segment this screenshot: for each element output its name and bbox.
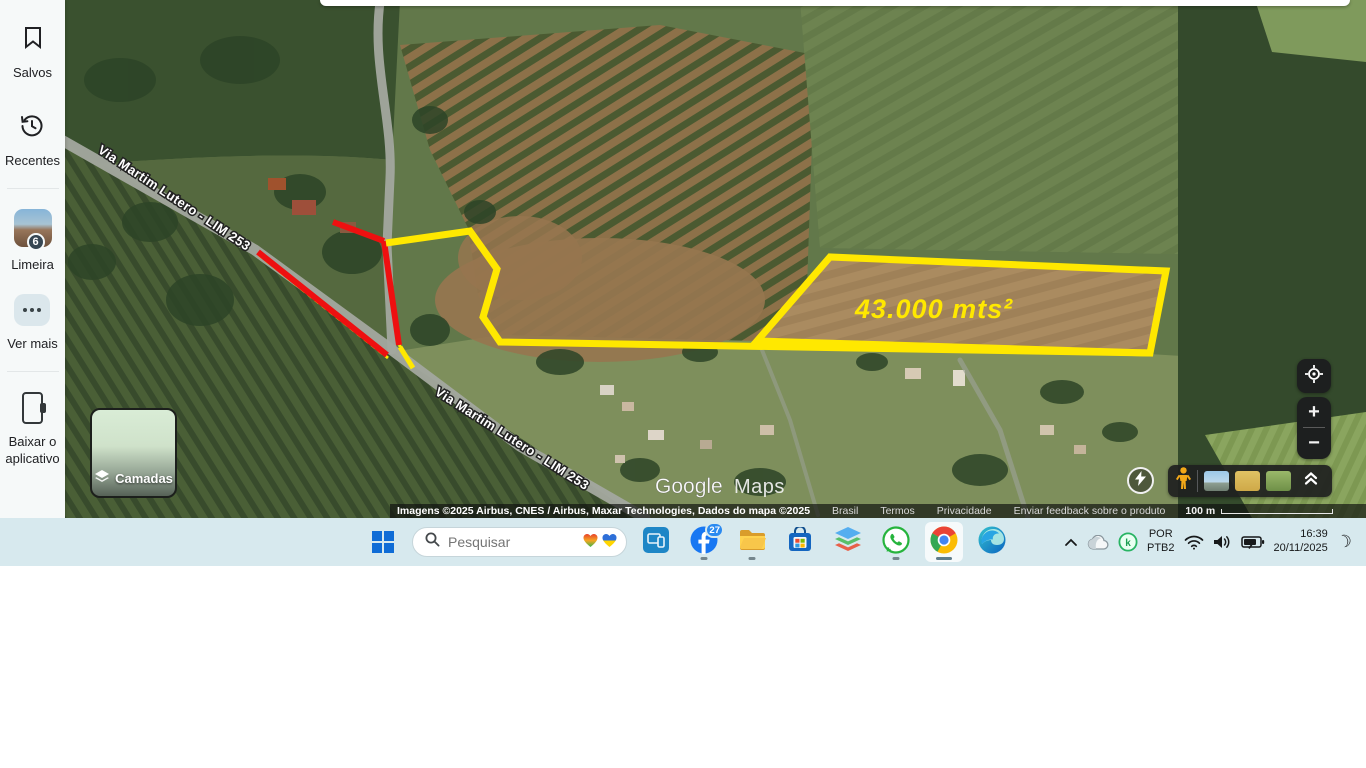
- blue-yellow-heart-icon: [601, 532, 618, 553]
- sidebar-item-label: Salvos: [13, 65, 52, 80]
- microsoft-store-icon: [787, 527, 813, 558]
- running-indicator: [701, 557, 708, 560]
- sidebar-item-recents[interactable]: Recentes: [5, 114, 60, 168]
- windows-taskbar: 27: [0, 518, 1366, 566]
- layers-icon: [94, 469, 110, 488]
- tray-date: 20/11/2025: [1274, 542, 1328, 556]
- active-indicator: [936, 557, 952, 560]
- layer-preview-satellite[interactable]: [1266, 471, 1291, 491]
- layers-app-button[interactable]: [829, 522, 867, 562]
- map-terrain: [0, 0, 1366, 518]
- sidebar-item-label-line2: aplicativo: [5, 451, 59, 466]
- watermark-maps: Maps: [734, 476, 785, 498]
- tray-chevron-up[interactable]: [1064, 538, 1078, 547]
- map-scale-label: 100 m: [1185, 505, 1215, 517]
- start-button[interactable]: [364, 522, 402, 562]
- attribution-link-brasil[interactable]: Brasil: [832, 505, 858, 517]
- maps-sidebar: Salvos Recentes 6 Limeir: [0, 0, 65, 518]
- layers-button-label: Camadas: [115, 471, 173, 486]
- pegman-icon[interactable]: [1176, 467, 1191, 495]
- sidebar-divider: [7, 371, 59, 372]
- file-explorer-icon: [739, 528, 766, 557]
- sidebar-item-saved[interactable]: Salvos: [13, 26, 52, 80]
- area-label: 43.000 mts²: [854, 294, 1013, 324]
- map-satellite-canvas[interactable]: Via Martim Lutero - LIM 253 Via Martim L…: [0, 0, 1366, 518]
- layers-app-icon: [834, 527, 862, 558]
- zoom-in-button[interactable]: +: [1297, 397, 1331, 427]
- layer-preview-streetview[interactable]: [1204, 471, 1229, 491]
- collapse-chevrons-icon[interactable]: [1303, 471, 1319, 491]
- kaspersky-icon[interactable]: k: [1118, 532, 1138, 552]
- attribution-link-feedback[interactable]: Enviar feedback sobre o produto: [1014, 505, 1166, 517]
- language-indicator[interactable]: POR PTB2: [1147, 528, 1175, 556]
- rainbow-heart-icon: [582, 532, 599, 553]
- whatsapp-button[interactable]: [877, 522, 915, 562]
- map-scale-bar: [1221, 509, 1333, 514]
- sidebar-item-limeira[interactable]: 6 Limeira: [11, 209, 54, 272]
- running-indicator: [749, 557, 756, 560]
- bookmark-icon: [22, 26, 44, 55]
- chrome-icon: [930, 526, 958, 559]
- edge-icon: [978, 526, 1006, 559]
- desktop: Via Martim Lutero - LIM 253 Via Martim L…: [0, 0, 1366, 768]
- lightning-extension-button[interactable]: [1127, 467, 1154, 494]
- map-attribution-bar: Imagens ©2025 Airbus, CNES / Airbus, Max…: [390, 504, 1366, 518]
- tray-time: 16:39: [1274, 528, 1328, 542]
- battery-charging-icon[interactable]: [1241, 535, 1265, 549]
- sidebar-divider: [7, 188, 59, 189]
- my-location-icon: [1304, 364, 1324, 389]
- layer-preview-terrain[interactable]: [1235, 471, 1260, 491]
- device-app-icon: [643, 527, 669, 558]
- blank-area: [0, 566, 1366, 768]
- search-card-edge[interactable]: [320, 0, 1350, 6]
- google-maps-window: Via Martim Lutero - LIM 253 Via Martim L…: [0, 0, 1366, 518]
- do-not-disturb-moon-icon[interactable]: ☽: [1335, 530, 1355, 553]
- lightning-icon: [1134, 471, 1147, 491]
- mini-toolbar-divider: [1197, 470, 1198, 492]
- device-app-button[interactable]: [637, 522, 675, 562]
- facebook-app-button[interactable]: 27: [685, 522, 723, 562]
- attribution-link-termos[interactable]: Termos: [880, 505, 914, 517]
- taskbar-search[interactable]: [412, 527, 627, 557]
- search-icon: [425, 532, 440, 552]
- language-code: POR: [1147, 528, 1175, 542]
- layers-button[interactable]: Camadas: [90, 408, 177, 498]
- file-explorer-button[interactable]: [733, 522, 771, 562]
- running-indicator: [893, 557, 900, 560]
- zoom-control: + −: [1297, 397, 1331, 459]
- volume-icon[interactable]: [1213, 534, 1232, 550]
- watermark-google: Google: [655, 475, 723, 498]
- sidebar-item-more[interactable]: Ver mais: [7, 294, 58, 351]
- sidebar-item-label-line1: Baixar o: [9, 434, 57, 449]
- keyboard-layout: PTB2: [1147, 542, 1175, 556]
- wifi-icon[interactable]: [1184, 535, 1204, 550]
- zoom-out-button[interactable]: −: [1297, 428, 1331, 458]
- imagery-credits: Imagens ©2025 Airbus, CNES / Airbus, Max…: [397, 505, 810, 517]
- place-badge: 6: [27, 233, 45, 251]
- history-icon: [20, 114, 44, 143]
- microsoft-store-button[interactable]: [781, 522, 819, 562]
- chrome-button-active[interactable]: [925, 522, 963, 562]
- sidebar-item-get-app[interactable]: Baixar o aplicativo: [5, 392, 59, 466]
- edge-button[interactable]: [973, 522, 1011, 562]
- svg-text:k: k: [1125, 538, 1131, 549]
- windows-logo-icon: [372, 531, 394, 553]
- sidebar-item-label: Recentes: [5, 153, 60, 168]
- clock[interactable]: 16:39 20/11/2025: [1274, 528, 1328, 556]
- map-mini-toolbar: [1168, 465, 1332, 497]
- onedrive-cloud-icon[interactable]: [1087, 535, 1109, 550]
- my-location-button[interactable]: [1297, 359, 1331, 393]
- more-dots-icon: [14, 294, 50, 326]
- sidebar-item-label: Limeira: [11, 257, 54, 272]
- whatsapp-icon: [882, 526, 910, 559]
- google-maps-watermark: Google Maps: [655, 475, 785, 498]
- attribution-link-privacidade[interactable]: Privacidade: [937, 505, 992, 517]
- search-input[interactable]: [448, 534, 574, 550]
- sidebar-item-label: Ver mais: [7, 336, 58, 351]
- facebook-notification-badge: 27: [705, 522, 724, 538]
- phone-icon: [22, 392, 43, 424]
